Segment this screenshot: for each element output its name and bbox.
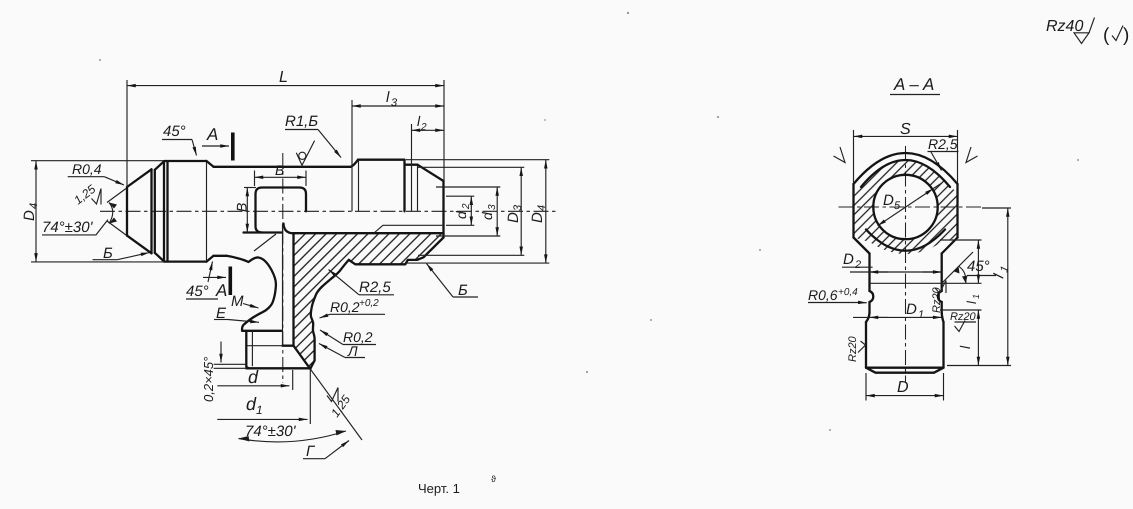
svg-text:A: A bbox=[206, 125, 218, 144]
svg-text:0,2×45°: 0,2×45° bbox=[201, 357, 216, 402]
svg-text:+0,2: +0,2 bbox=[359, 298, 379, 309]
svg-text:R0,4: R0,4 bbox=[72, 161, 102, 177]
svg-text:1: 1 bbox=[971, 294, 981, 299]
svg-text:4: 4 bbox=[28, 203, 40, 209]
svg-text:A: A bbox=[215, 281, 227, 300]
svg-text:74°±30': 74°±30' bbox=[42, 219, 94, 236]
svg-text:R1,Б: R1,Б bbox=[285, 113, 318, 130]
svg-text:d: d bbox=[479, 211, 495, 220]
svg-text:1: 1 bbox=[256, 403, 263, 417]
svg-text:D: D bbox=[906, 301, 917, 318]
svg-text:2: 2 bbox=[461, 203, 472, 210]
svg-text:D: D bbox=[883, 192, 894, 209]
svg-text:D: D bbox=[897, 379, 909, 396]
svg-text:3: 3 bbox=[487, 204, 498, 210]
svg-text:В: В bbox=[234, 203, 250, 212]
svg-text:Rz20: Rz20 bbox=[931, 286, 943, 313]
svg-text:4: 4 bbox=[536, 205, 548, 211]
svg-text:Rz20: Rz20 bbox=[847, 335, 859, 362]
svg-text:): ) bbox=[1123, 25, 1129, 46]
svg-text:D: D bbox=[843, 251, 854, 268]
svg-text:R0,2: R0,2 bbox=[330, 299, 360, 315]
svg-text:L: L bbox=[279, 69, 288, 86]
svg-text:A – A: A – A bbox=[893, 75, 934, 94]
svg-text:d: d bbox=[248, 367, 259, 387]
svg-text:2: 2 bbox=[854, 259, 861, 271]
svg-text:R2,5: R2,5 bbox=[928, 136, 958, 152]
svg-text:5: 5 bbox=[894, 200, 901, 212]
svg-text:R0,6: R0,6 bbox=[808, 287, 838, 303]
svg-text:Rz20: Rz20 bbox=[950, 311, 977, 323]
svg-text:D: D bbox=[21, 210, 38, 221]
svg-text:D: D bbox=[529, 212, 546, 223]
svg-text:S: S bbox=[900, 121, 911, 138]
svg-text:+0,4: +0,4 bbox=[838, 287, 858, 298]
svg-text:M: M bbox=[231, 293, 244, 310]
svg-text:Черт. 1: Черт. 1 bbox=[418, 481, 460, 496]
svg-text:3: 3 bbox=[512, 204, 524, 211]
svg-text:74°±30': 74°±30' bbox=[245, 423, 297, 440]
svg-text:45°: 45° bbox=[163, 123, 186, 140]
svg-text:D: D bbox=[505, 212, 522, 223]
svg-text:Л: Л bbox=[347, 343, 358, 359]
svg-text:2: 2 bbox=[420, 122, 427, 133]
svg-text:R2,5: R2,5 bbox=[359, 279, 391, 296]
svg-text:45°: 45° bbox=[186, 283, 209, 300]
svg-text:d: d bbox=[453, 210, 469, 219]
svg-text:ϑ: ϑ bbox=[491, 474, 496, 484]
svg-text:3: 3 bbox=[391, 97, 398, 109]
svg-text:(: ( bbox=[1103, 25, 1110, 46]
svg-text:1: 1 bbox=[918, 309, 924, 321]
svg-text:В: В bbox=[275, 162, 284, 178]
